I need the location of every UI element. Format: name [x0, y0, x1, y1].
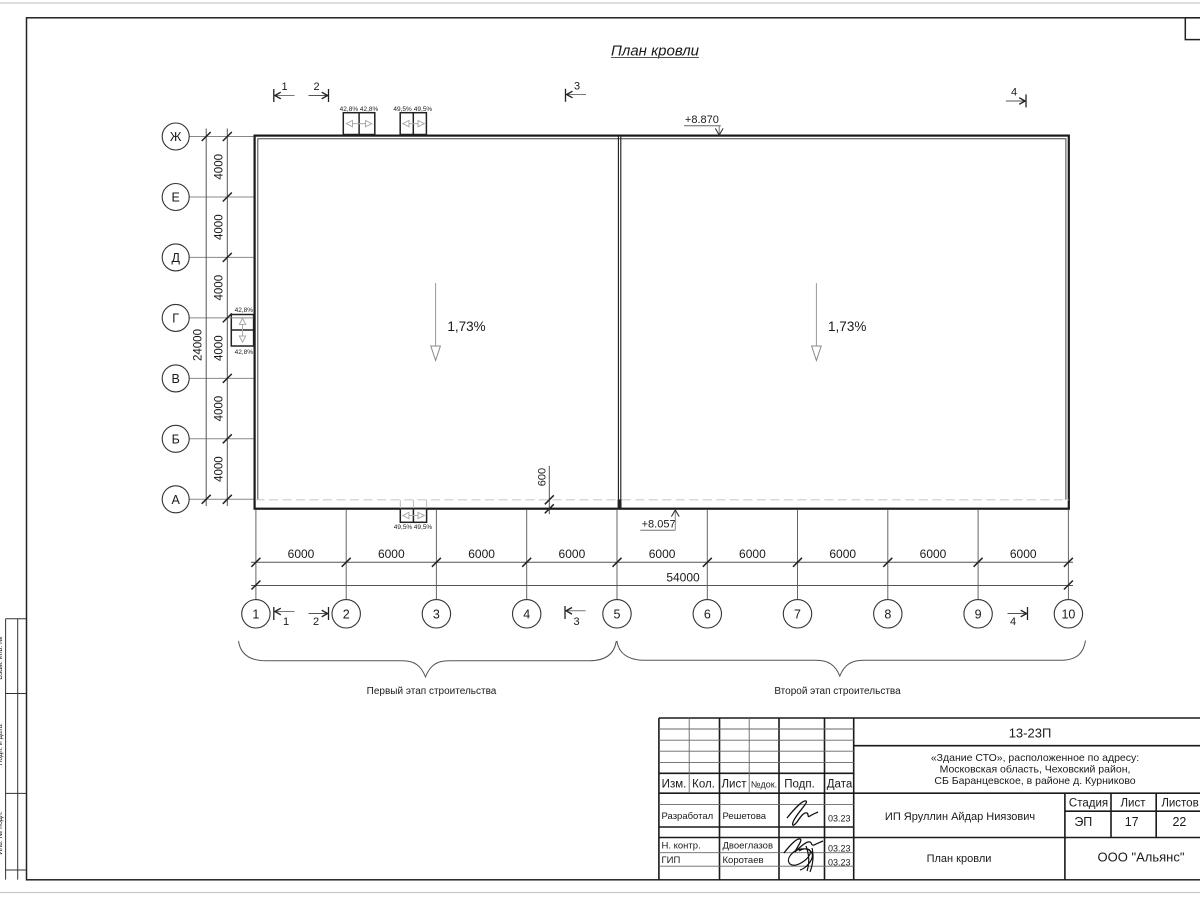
svg-text:Дата: Дата [827, 779, 853, 791]
svg-text:6000: 6000 [1010, 547, 1037, 561]
svg-text:Разработал: Разработал [662, 811, 714, 822]
svg-text:+8.057: +8.057 [642, 518, 676, 530]
svg-text:03.23: 03.23 [828, 844, 851, 854]
svg-text:6: 6 [704, 607, 711, 621]
svg-text:ГИП: ГИП [662, 855, 681, 866]
svg-text:Д: Д [171, 251, 180, 265]
svg-text:5: 5 [614, 607, 621, 621]
svg-text:Лист: Лист [722, 779, 748, 791]
svg-text:Стадия: Стадия [1069, 798, 1108, 810]
svg-text:17: 17 [1125, 815, 1139, 829]
svg-text:СБ Баранцевское, в районе д. К: СБ Баранцевское, в районе д. Курниково [934, 775, 1135, 787]
svg-text:Листов: Листов [1161, 798, 1198, 810]
svg-text:9: 9 [975, 607, 982, 621]
svg-text:Ж: Ж [170, 130, 182, 144]
svg-text:42,8%: 42,8% [235, 307, 254, 314]
svg-text:8: 8 [884, 607, 891, 621]
svg-text:1: 1 [281, 81, 287, 93]
svg-text:Решетова: Решетова [723, 811, 767, 822]
svg-text:Н. контр.: Н. контр. [662, 841, 701, 852]
svg-text:03.23: 03.23 [828, 814, 851, 824]
svg-text:49,5%: 49,5% [394, 524, 413, 531]
svg-text:1: 1 [252, 607, 259, 621]
svg-text:ЭП: ЭП [1074, 815, 1092, 829]
svg-text:3: 3 [433, 607, 440, 621]
svg-text:7: 7 [794, 607, 801, 621]
svg-text:600: 600 [537, 468, 549, 486]
svg-text:49,5%: 49,5% [393, 106, 412, 113]
svg-text:6000: 6000 [288, 547, 315, 561]
svg-text:Взам. инв. №: Взам. инв. № [0, 636, 4, 679]
svg-text:ООО "Альянс": ООО "Альянс" [1098, 850, 1185, 865]
svg-text:3: 3 [574, 81, 580, 93]
svg-text:Г: Г [172, 311, 179, 325]
svg-text:4000: 4000 [214, 154, 226, 180]
svg-text:4000: 4000 [214, 456, 226, 482]
svg-text:Изм.: Изм. [662, 779, 687, 791]
svg-text:Коротаев: Коротаев [723, 855, 764, 866]
svg-text:В: В [172, 372, 180, 386]
svg-text:4: 4 [523, 607, 530, 621]
svg-text:1,73%: 1,73% [447, 319, 485, 334]
svg-text:4: 4 [1011, 87, 1017, 99]
svg-text:4000: 4000 [214, 214, 226, 240]
svg-text:13-23П: 13-23П [1009, 726, 1052, 741]
svg-text:54000: 54000 [666, 571, 700, 585]
svg-text:10: 10 [1061, 607, 1075, 621]
svg-text:Кол.: Кол. [692, 779, 715, 791]
svg-text:6000: 6000 [468, 547, 495, 561]
svg-text:4000: 4000 [214, 396, 226, 422]
svg-text:Е: Е [172, 191, 180, 205]
svg-text:6000: 6000 [829, 547, 856, 561]
svg-text:2: 2 [343, 607, 350, 621]
svg-text:6000: 6000 [649, 547, 676, 561]
svg-text:Двоеглазов: Двоеглазов [723, 841, 774, 852]
svg-text:Подп. и дата: Подп. и дата [0, 724, 4, 765]
svg-text:4000: 4000 [214, 275, 226, 301]
svg-text:Московская область, Чеховский: Московская область, Чеховский район, [940, 764, 1131, 776]
svg-text:42,8%: 42,8% [360, 106, 379, 113]
svg-text:4000: 4000 [214, 335, 226, 361]
svg-text:42,8%: 42,8% [235, 349, 254, 356]
svg-text:1,73%: 1,73% [828, 319, 866, 334]
svg-text:42,8%: 42,8% [340, 106, 359, 113]
svg-text:План кровли: План кровли [611, 43, 700, 60]
svg-text:Инв. № подл.: Инв. № подл. [0, 811, 4, 855]
svg-text:22: 22 [1172, 815, 1186, 829]
svg-text:03.23: 03.23 [828, 858, 851, 868]
svg-text:2: 2 [313, 616, 319, 628]
svg-text:6000: 6000 [559, 547, 586, 561]
svg-text:ИП Яруллин Айдар Ниязович: ИП Яруллин Айдар Ниязович [885, 811, 1035, 823]
svg-text:+8.870: +8.870 [685, 114, 719, 126]
svg-text:1: 1 [283, 616, 289, 628]
svg-text:План кровли: План кровли [927, 853, 992, 865]
svg-text:Подп.: Подп. [784, 779, 815, 791]
svg-text:№док.: №док. [751, 780, 777, 790]
svg-text:49,5%: 49,5% [414, 106, 433, 113]
svg-text:Второй этап строительства: Второй этап строительства [774, 686, 901, 697]
svg-text:«Здание СТО», расположенное по: «Здание СТО», расположенное по адресу: [931, 752, 1139, 764]
svg-text:6000: 6000 [739, 547, 766, 561]
svg-text:6000: 6000 [378, 547, 405, 561]
svg-text:Лист: Лист [1121, 798, 1147, 810]
svg-text:Первый этап строительства: Первый этап строительства [367, 686, 497, 697]
svg-text:24000: 24000 [193, 329, 205, 361]
svg-text:А: А [172, 493, 181, 507]
svg-text:3: 3 [573, 616, 579, 628]
svg-text:6000: 6000 [920, 547, 947, 561]
svg-text:4: 4 [1010, 616, 1016, 628]
svg-text:Б: Б [172, 432, 180, 446]
svg-text:2: 2 [313, 81, 319, 93]
svg-text:49,5%: 49,5% [414, 524, 433, 531]
